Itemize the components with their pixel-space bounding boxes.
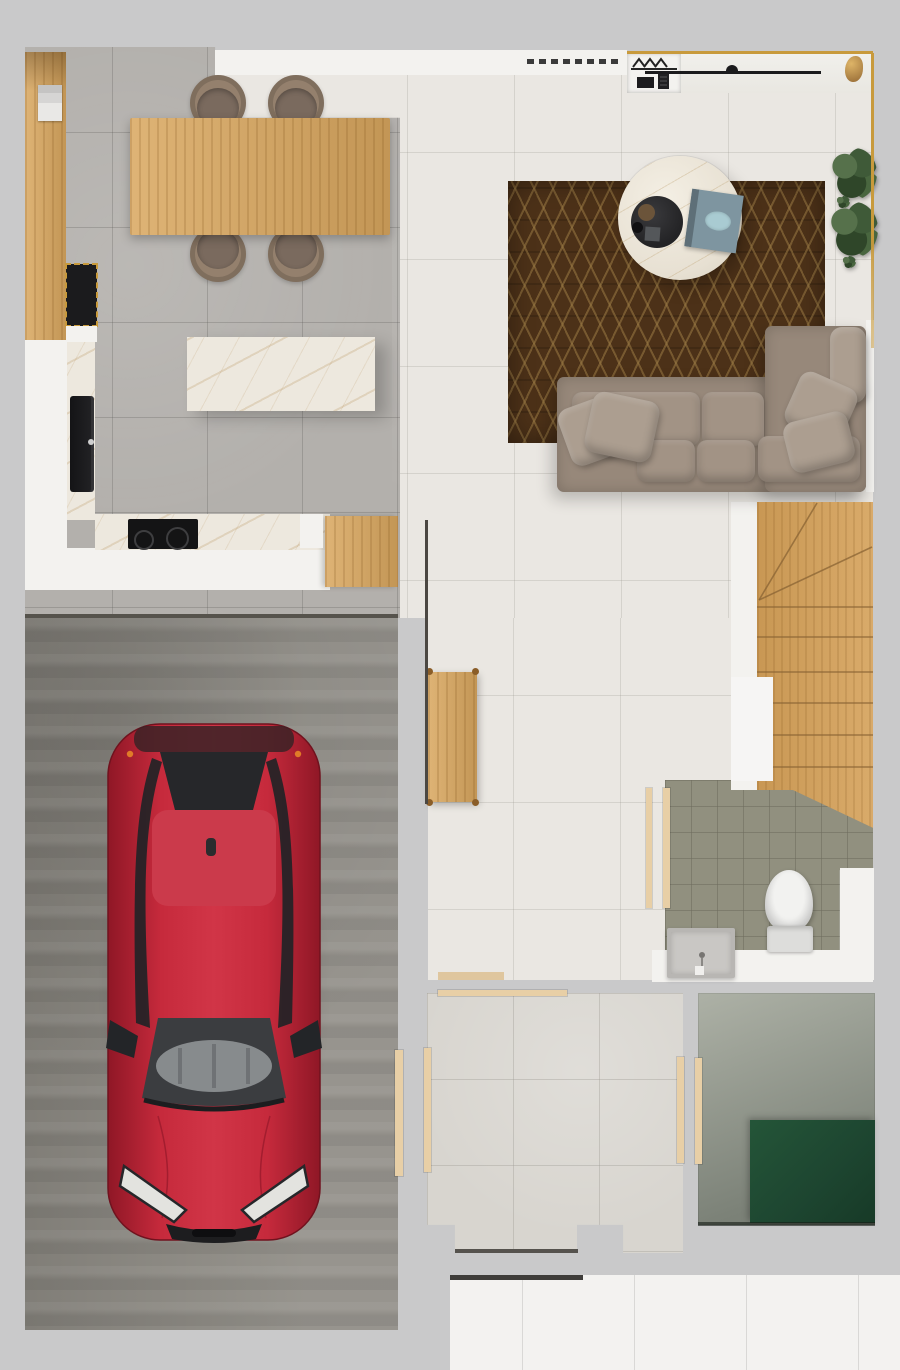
red-car: [100, 718, 328, 1248]
sofa-back-cushion: [702, 392, 764, 446]
utility-wall-line: [698, 1222, 875, 1226]
plant-sprig: [842, 256, 856, 268]
cooktop-burner: [166, 527, 189, 550]
chair-seat: [197, 229, 239, 269]
dining-table: [130, 118, 390, 235]
gold-trim-right: [871, 53, 874, 348]
garage-wall-edge: [25, 614, 398, 618]
storage-door-right: [677, 1057, 684, 1163]
stairs-wall-notch: [731, 677, 773, 781]
garage-side-door: [395, 1050, 403, 1176]
hallway-wall-line: [425, 520, 428, 804]
storage-room-floor: [427, 993, 683, 1253]
decor-book: [684, 189, 744, 254]
coffee-machine: [38, 85, 62, 121]
door-threshold-dashes: [527, 59, 620, 64]
hallway-door-leaf: [646, 788, 652, 908]
counter-white-section: [66, 326, 97, 342]
kitchen-island: [187, 337, 375, 411]
car-taillight: [295, 751, 301, 757]
hallway-bench: [428, 672, 477, 802]
black-counter: [66, 264, 97, 326]
sofa-seat-cushion: [697, 440, 755, 482]
wall-rail-hook: [726, 65, 738, 72]
chair-seat: [275, 229, 317, 269]
car-grille: [192, 1229, 236, 1237]
floor-plan: [0, 0, 900, 1370]
gold-trim-top: [627, 51, 873, 54]
hallway-threshold: [438, 972, 504, 980]
cooktop-burner: [134, 530, 154, 550]
toilet: [765, 870, 813, 932]
kitchen-wall-left: [25, 340, 67, 590]
porch-floor: [450, 1275, 900, 1370]
vanity-sink: [667, 928, 735, 978]
storage-door-left: [424, 1048, 431, 1172]
toilet-tank: [767, 926, 813, 952]
car-antenna: [206, 838, 216, 856]
utility-door: [695, 1058, 702, 1164]
green-mat: [750, 1120, 875, 1223]
sink-faucet: [88, 439, 94, 445]
bench-foot: [472, 668, 479, 675]
kitchen-cabinet-right: [325, 516, 398, 587]
soap-dish: [695, 966, 704, 975]
winder-stairs: [757, 502, 873, 790]
storage-wall-line: [455, 1249, 578, 1253]
book-oval-motif: [704, 210, 732, 232]
stair-treads: [757, 502, 873, 790]
porch-wall-line: [450, 1275, 583, 1280]
tray-bowl: [632, 222, 643, 233]
car-roof: [152, 810, 276, 906]
car-rear-window: [160, 752, 268, 819]
car-rear-band: [134, 726, 294, 752]
bench-foot: [472, 799, 479, 806]
car-taillight: [127, 751, 133, 757]
storage-door-top: [438, 990, 567, 996]
tray-plate: [638, 204, 655, 221]
bathroom-door: [663, 788, 670, 908]
counter-white-box: [300, 514, 323, 548]
tray-coaster: [645, 226, 661, 241]
kitchen-wall-bottom: [67, 548, 330, 590]
